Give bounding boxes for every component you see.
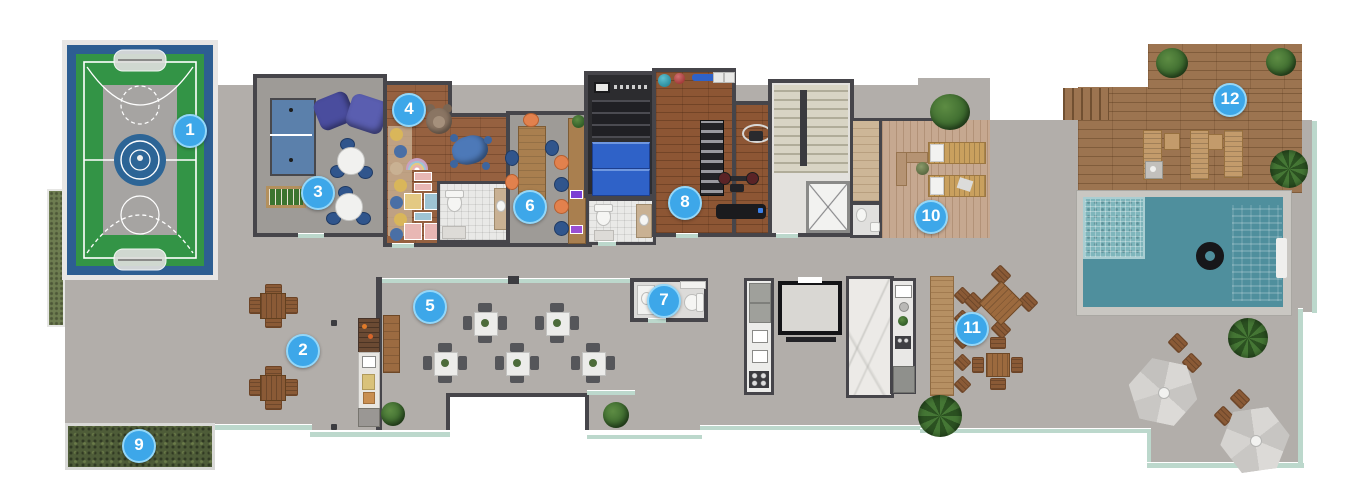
area-marker-10-sun-deck[interactable]: 10 bbox=[914, 200, 948, 234]
area-marker-12-pool-deck[interactable]: 12 bbox=[1213, 83, 1247, 117]
area-marker-4-kids-playroom[interactable]: 4 bbox=[392, 93, 426, 127]
amenities-floorplan: 123456789101112 bbox=[0, 0, 1365, 501]
area-marker-1-basketball-court[interactable]: 1 bbox=[173, 114, 207, 148]
marker-layer: 123456789101112 bbox=[0, 0, 1365, 501]
area-marker-7-restroom[interactable]: 7 bbox=[647, 284, 681, 318]
area-marker-5-party-room[interactable]: 5 bbox=[413, 290, 447, 324]
area-marker-3-games-room[interactable]: 3 bbox=[301, 176, 335, 210]
area-marker-8-gym[interactable]: 8 bbox=[668, 186, 702, 220]
area-marker-2-terrace-tables[interactable]: 2 bbox=[286, 334, 320, 368]
area-marker-6-coworking-room[interactable]: 6 bbox=[513, 190, 547, 224]
area-marker-11-gourmet-bar[interactable]: 11 bbox=[955, 312, 989, 346]
area-marker-9-garden-bed[interactable]: 9 bbox=[122, 429, 156, 463]
